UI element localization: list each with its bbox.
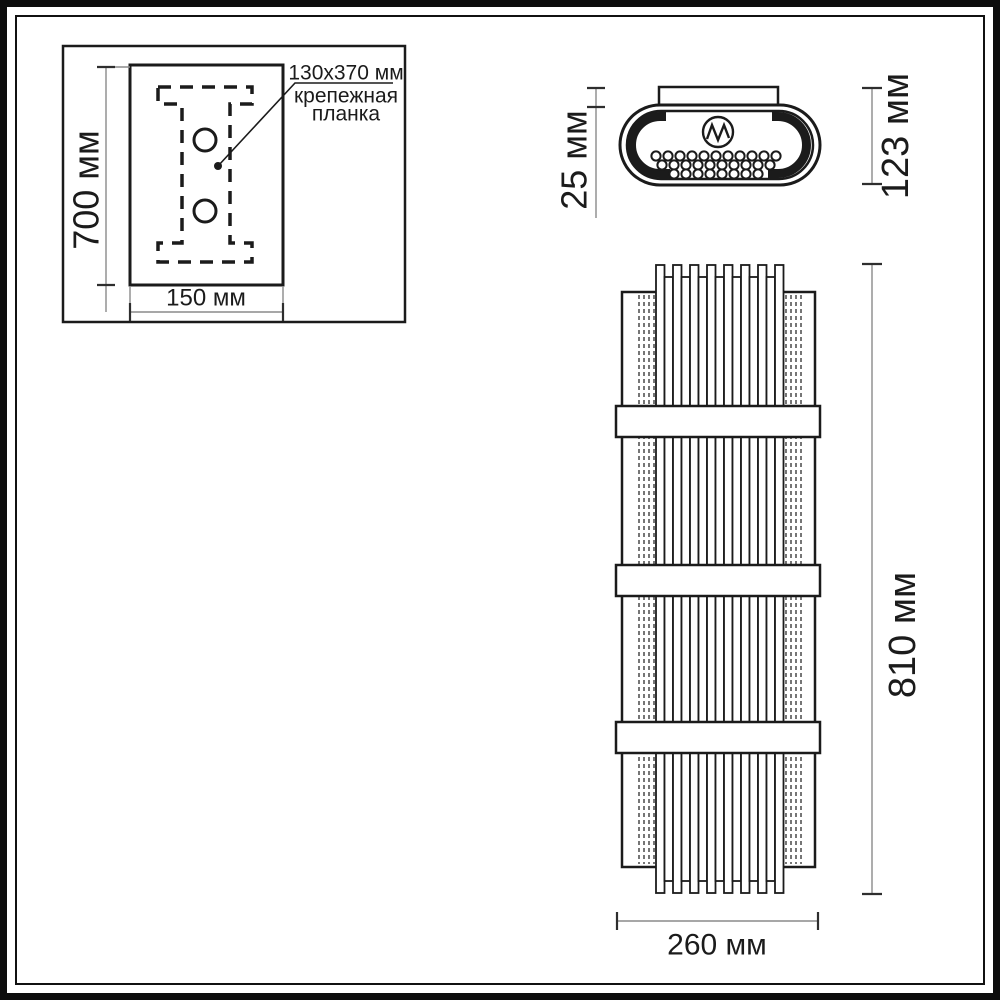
lamp-dimension-drawing: 130x370 мм крепежная планка 700 мм 150 м… <box>0 0 1000 1000</box>
page-outer-border <box>0 0 1000 1000</box>
